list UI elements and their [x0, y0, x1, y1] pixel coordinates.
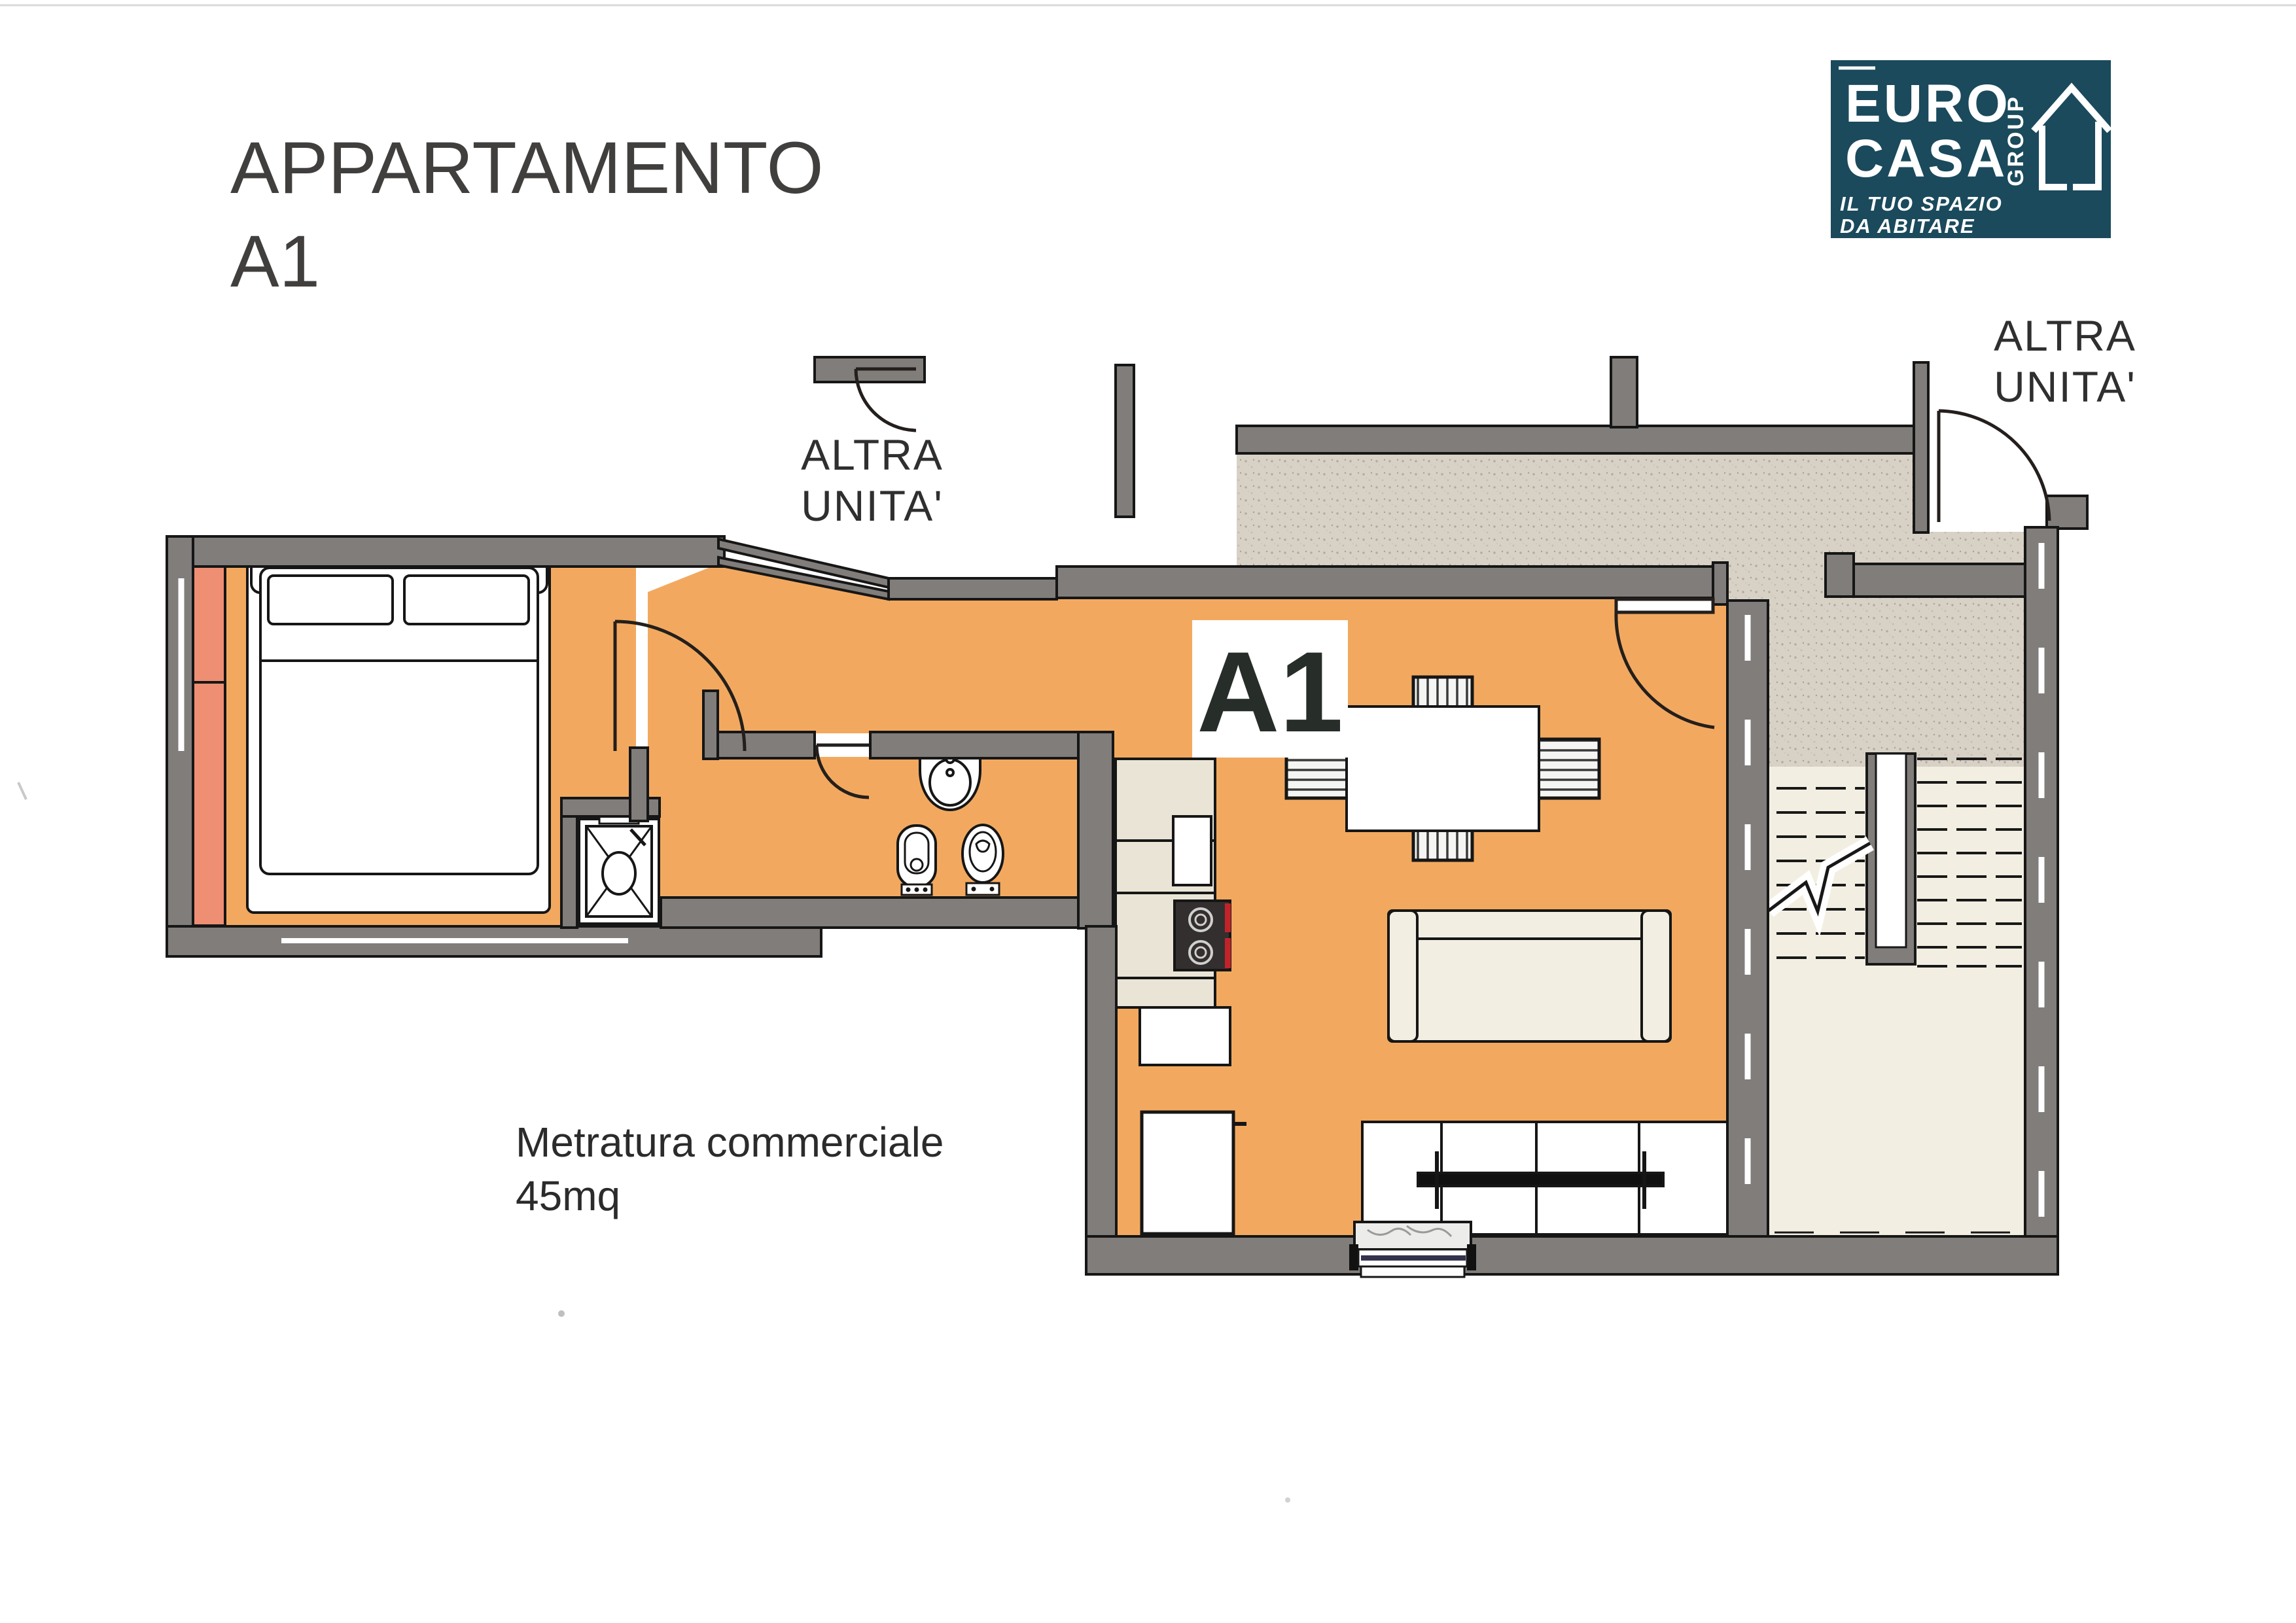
page-title-line1: APPARTAMENTO [230, 127, 824, 209]
scan-dot [1285, 1497, 1290, 1503]
wall-bathroom-top-right [870, 732, 1078, 758]
wall-upper-right-stub [2047, 496, 2087, 529]
cooktop-red-accent [1225, 903, 1231, 932]
logo-word1: EURO [1845, 74, 2011, 133]
logo-word2: CASA [1845, 129, 2007, 188]
sofa-armrest-left [1388, 911, 1417, 1041]
window-symbol [1349, 1222, 1476, 1277]
other-unit-label-top-line2: UNITA' [801, 481, 944, 530]
shower-drain [603, 852, 635, 894]
kitchen-sink-symbol [1173, 816, 1211, 885]
scanned-floor-plan-page: A1 ALTRA UNITA' ALTRA UNITA' APPARTAMENT… [0, 0, 2296, 1623]
window-outer-sill [1361, 1266, 1464, 1277]
floor-plan: A1 ALTRA UNITA' ALTRA UNITA' APPARTAMENT… [0, 0, 2296, 1623]
wall-entrance-jamb [1713, 563, 1727, 604]
logo-tagline-line1: IL TUO SPAZIO [1840, 192, 2003, 215]
wall-bathroom-top-left [715, 732, 815, 758]
other-unit-label-right-line1: ALTRA [1994, 311, 2136, 360]
stair-well-gap [1876, 754, 1906, 947]
wall-bed-bath-divider [630, 748, 648, 821]
area-note-line1: Metratura commerciale [516, 1119, 944, 1166]
logo-tagline-line2: DA ABITARE [1840, 215, 1975, 237]
chair-symbol [1538, 739, 1599, 798]
scan-mark [18, 782, 26, 799]
window-jamb [1349, 1244, 1358, 1270]
other-unit-label-right-line2: UNITA' [1994, 362, 2136, 411]
fridge-symbol [1142, 1112, 1233, 1234]
page-title-line2: A1 [230, 220, 320, 302]
toilet-symbol [963, 825, 1003, 882]
logo: EURO CASA GROUP IL TUO SPAZIO DA ABITARE [1831, 60, 2111, 238]
other-unit-right-door-arc [1939, 411, 2049, 521]
wall-living-top [1057, 567, 1713, 598]
area-note-line2: 45mq [516, 1172, 620, 1219]
dining-table-symbol [1347, 707, 1539, 831]
pillow-right [404, 576, 529, 624]
bathroom-floor [648, 757, 1078, 900]
other-unit-label-top-line1: ALTRA [801, 430, 944, 479]
toilet-flush [976, 841, 989, 852]
wall-bedroom-top [167, 536, 724, 567]
wall-other-unit-post [1116, 365, 1134, 517]
wall-corridor-north [1237, 426, 1917, 453]
wall-bathroom-bottom [661, 898, 1078, 928]
wall-stub-top [1611, 357, 1637, 427]
sofa-armrest-right [1642, 911, 1670, 1041]
window-sill-marble [1354, 1222, 1471, 1249]
logo-word3: GROUP [2004, 95, 2028, 186]
sofa-symbol [1388, 911, 1670, 1041]
wall-bottom [1086, 1236, 2058, 1274]
cooktop-red-accent [1225, 938, 1231, 968]
wall-corridor-stair-jamb [1826, 553, 1854, 597]
bidet-symbol [898, 826, 936, 887]
sink-drain-dot [947, 769, 953, 776]
wall-corridor-post [703, 691, 718, 759]
tv-symbol [1418, 1173, 1663, 1186]
scan-dot [558, 1310, 565, 1317]
wall-upper-right-door [1914, 362, 1928, 532]
wall-corridor-stair [1854, 564, 2025, 597]
cooktop-symbol [1174, 901, 1230, 970]
entrance-door-leaf [1616, 599, 1713, 612]
unit-badge: A1 [1197, 629, 1343, 756]
wall-corridor-south [889, 578, 1057, 599]
wall-living-left [1086, 926, 1116, 1244]
sink-basin [930, 759, 970, 805]
wall-bathroom-right [1078, 732, 1113, 928]
oven-symbol [1140, 1007, 1230, 1065]
window-jamb [1467, 1244, 1476, 1270]
pillow-left [268, 576, 393, 624]
